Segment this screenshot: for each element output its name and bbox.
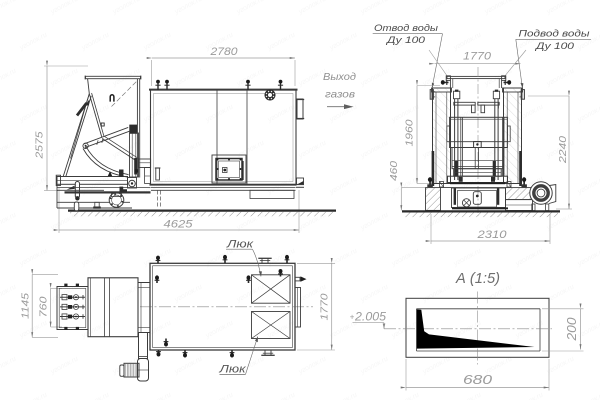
- svg-text:2310: 2310: [476, 229, 507, 241]
- svg-text:2780: 2780: [209, 46, 238, 58]
- svg-text:1960: 1960: [404, 119, 416, 146]
- svg-text:760: 760: [38, 296, 50, 317]
- svg-text:Ду 100: Ду 100: [535, 41, 575, 52]
- svg-text:1145: 1145: [20, 293, 32, 319]
- svg-text:2.005: 2.005: [354, 312, 387, 324]
- svg-text:2575: 2575: [34, 131, 46, 159]
- svg-text:460: 460: [388, 161, 400, 181]
- svg-text:200: 200: [565, 317, 579, 341]
- svg-text:1770: 1770: [319, 293, 331, 320]
- svg-text:Люк: Люк: [218, 364, 246, 376]
- svg-text:газов: газов: [325, 89, 356, 101]
- svg-text:Подвод воды: Подвод воды: [519, 29, 590, 40]
- svg-text:1770: 1770: [463, 51, 492, 63]
- svg-text:Люк: Люк: [226, 239, 254, 251]
- svg-text:Отвод воды: Отвод воды: [374, 23, 438, 34]
- svg-text:Ду 100: Ду 100: [386, 35, 426, 46]
- svg-text:2240: 2240: [557, 136, 569, 164]
- svg-text:4625: 4625: [164, 219, 194, 231]
- svg-text:680: 680: [463, 372, 493, 387]
- svg-text:Выход: Выход: [323, 71, 356, 83]
- svg-text:+: +: [350, 313, 355, 322]
- svg-text:А (1:5): А (1:5): [455, 270, 500, 287]
